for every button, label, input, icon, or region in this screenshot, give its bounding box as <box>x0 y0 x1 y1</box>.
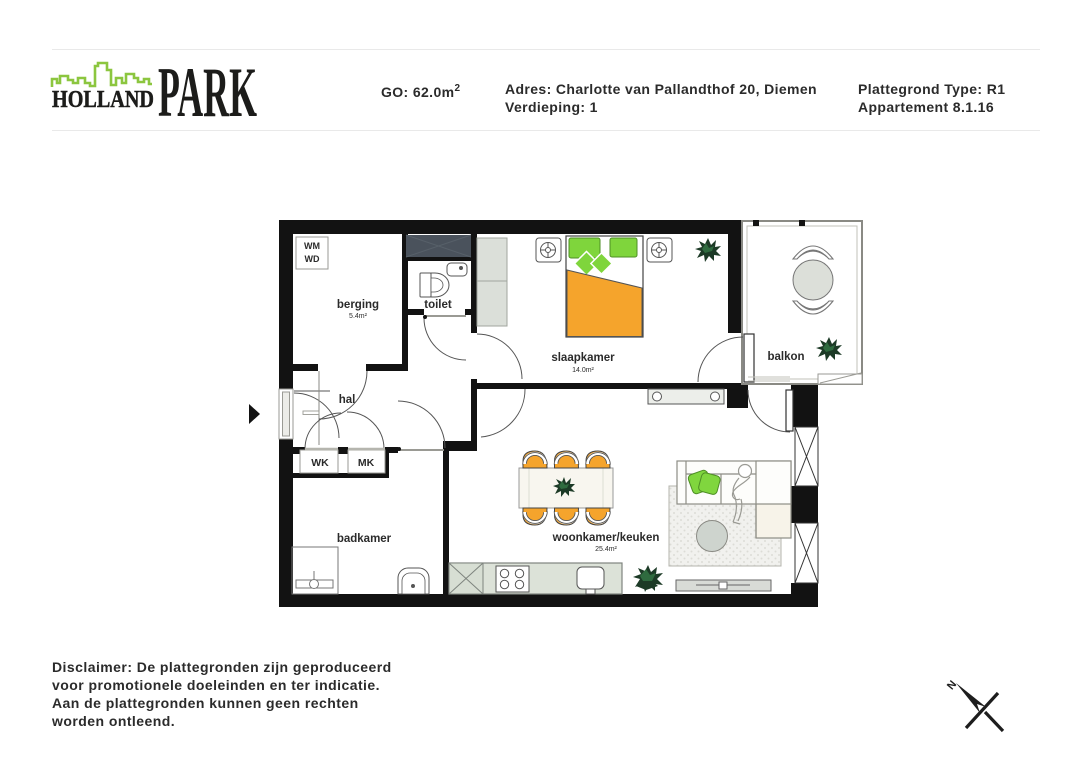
svg-text:berging: berging <box>337 299 379 311</box>
svg-text:hal: hal <box>339 394 356 406</box>
svg-text:WD: WD <box>305 254 320 264</box>
svg-text:woonkamer/keuken: woonkamer/keuken <box>552 532 660 544</box>
svg-text:WK: WK <box>311 457 329 469</box>
svg-text:14.0m²: 14.0m² <box>572 367 594 374</box>
svg-text:slaapkamer: slaapkamer <box>551 352 615 364</box>
svg-text:WM: WM <box>304 241 320 251</box>
svg-text:5.4m²: 5.4m² <box>349 313 368 320</box>
svg-text:25.4m²: 25.4m² <box>595 546 617 553</box>
svg-text:toilet: toilet <box>424 299 452 311</box>
svg-text:badkamer: badkamer <box>337 533 392 545</box>
svg-text:N: N <box>945 678 959 692</box>
svg-text:MK: MK <box>358 457 375 469</box>
svg-text:balkon: balkon <box>767 351 804 363</box>
